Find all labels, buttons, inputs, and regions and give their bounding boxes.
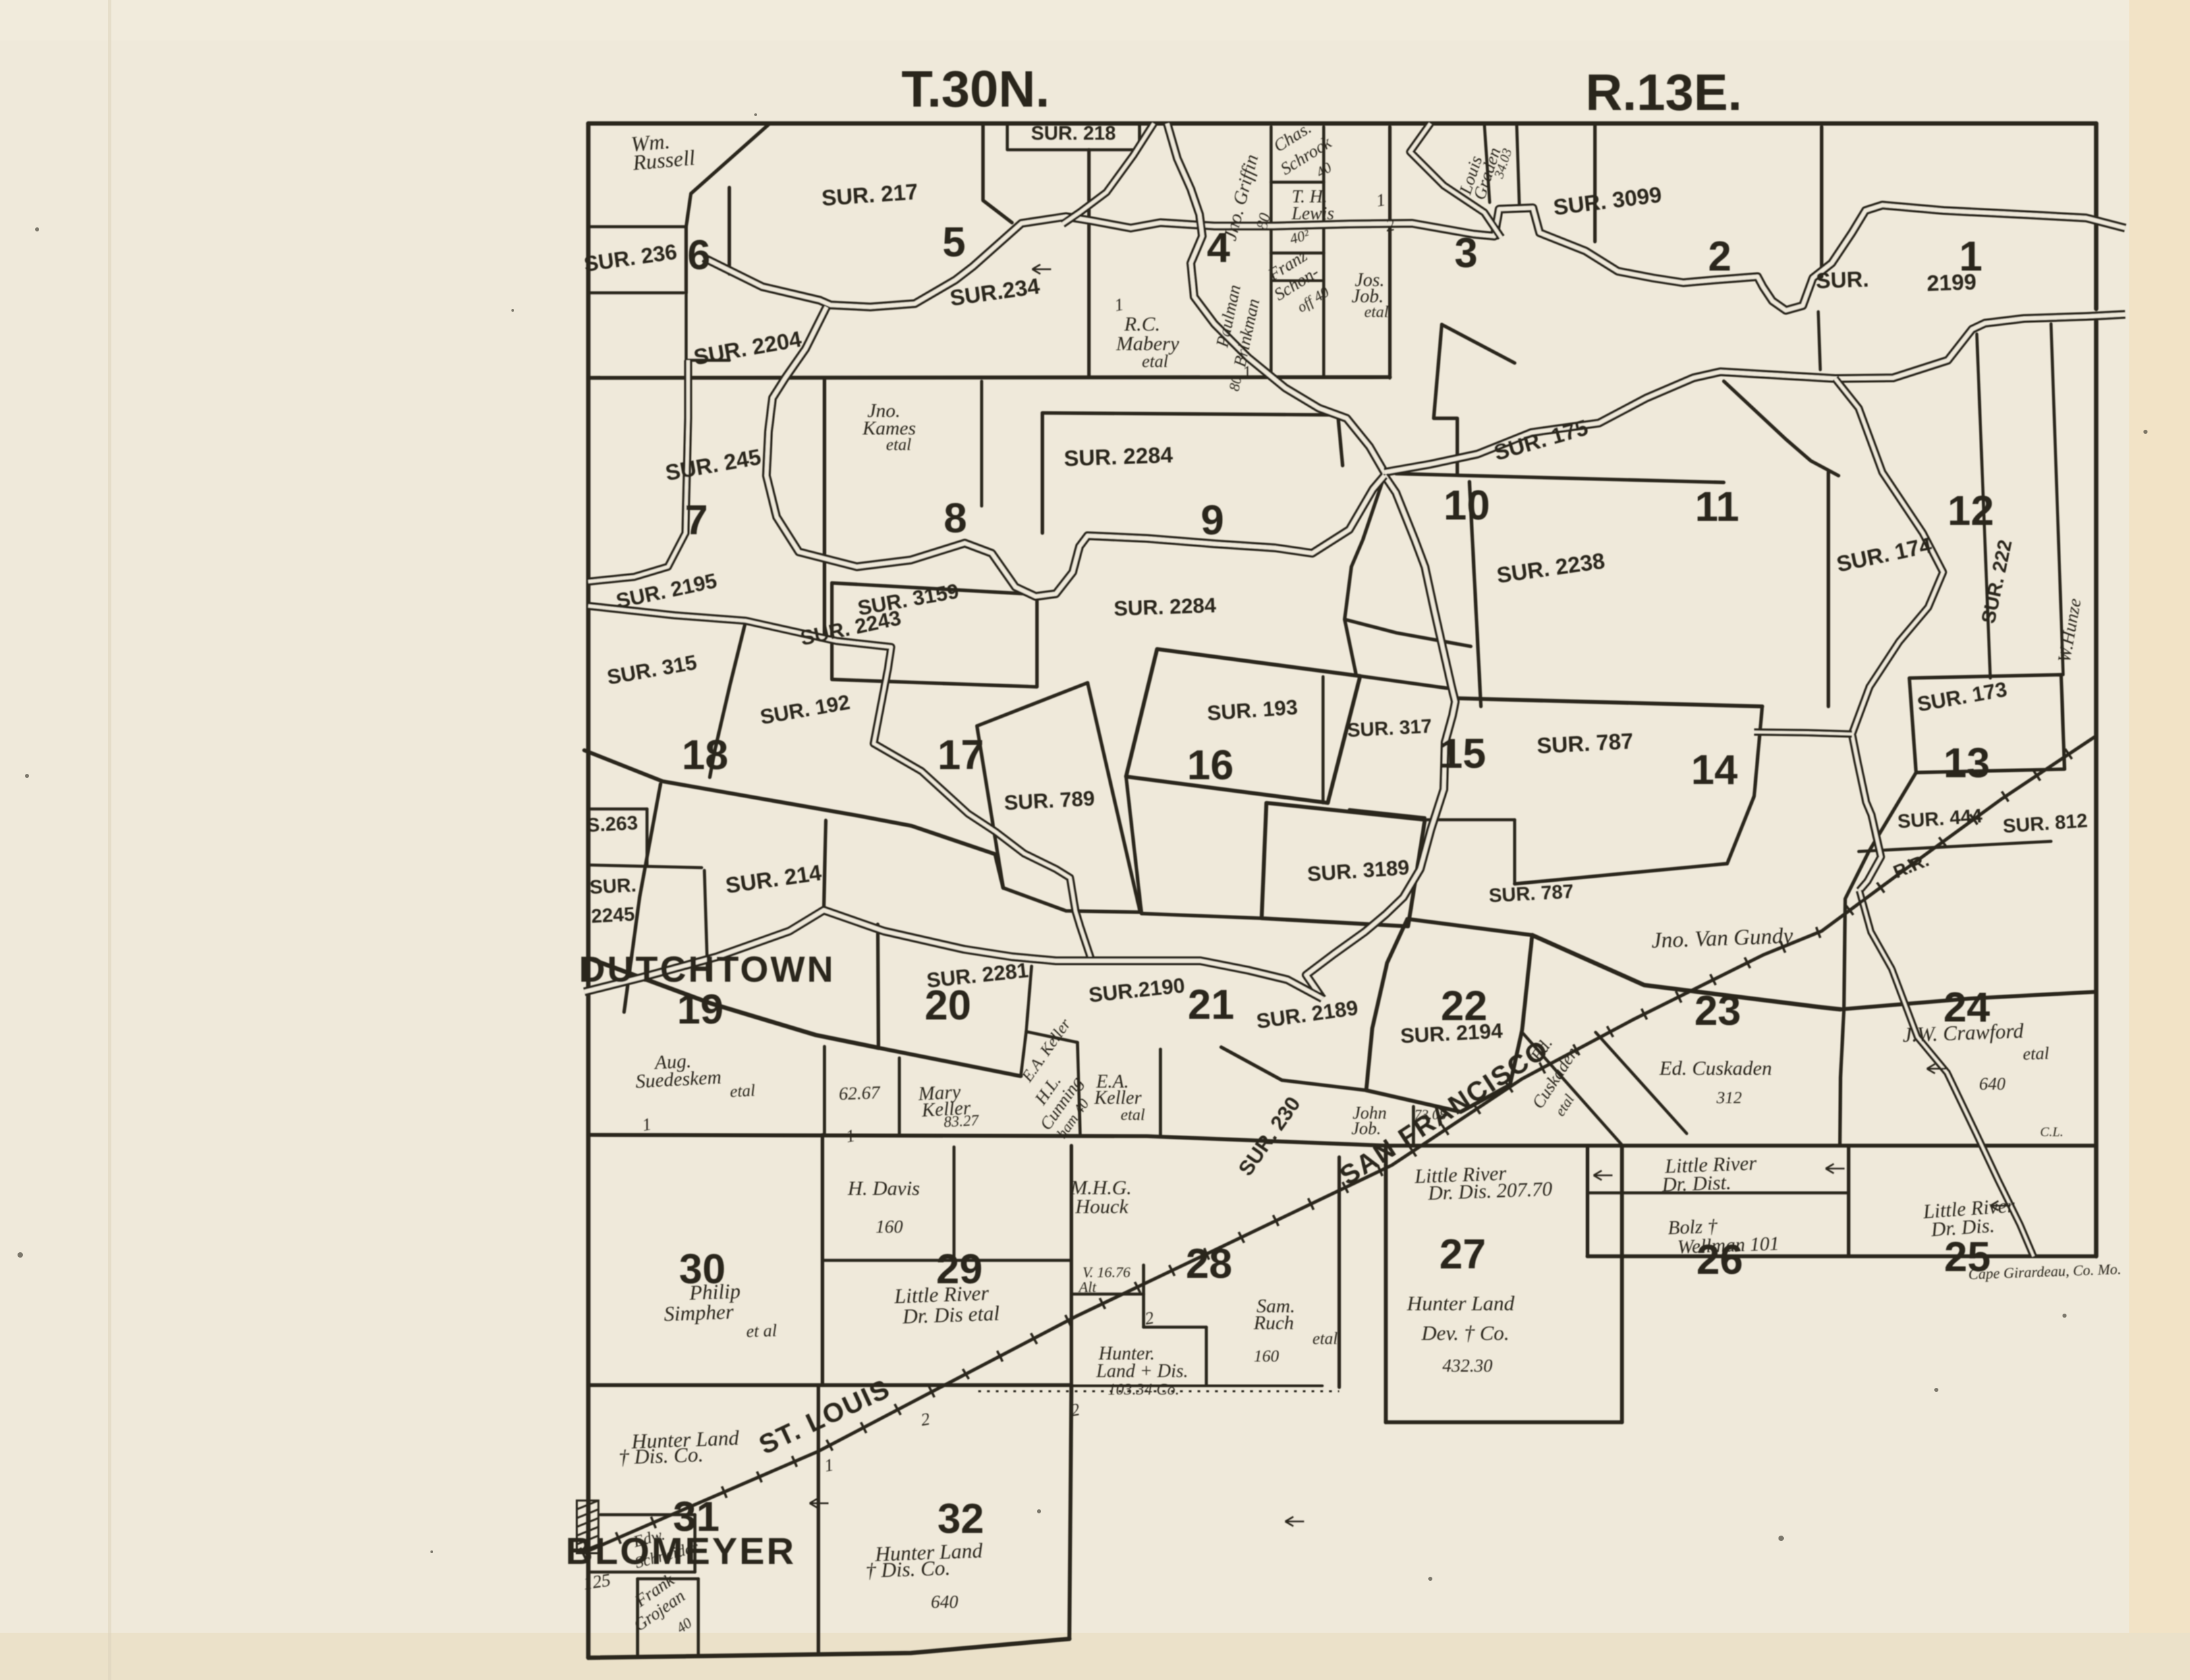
svg-text:23: 23 [1695,988,1741,1034]
svg-text:DUTCHTOWN: DUTCHTOWN [579,949,835,990]
svg-text:640: 640 [931,1592,959,1612]
svg-text:SUR.: SUR. [1816,267,1870,293]
svg-text:SUR. 218: SUR. 218 [1031,123,1116,144]
svg-text:8: 8 [944,495,967,542]
svg-text:Suedeskem: Suedeskem [635,1067,722,1093]
svg-text:† Dis. Co.: † Dis. Co. [618,1443,704,1469]
svg-text:C.L.: C.L. [2040,1125,2063,1140]
svg-text:15: 15 [1440,731,1486,777]
svg-text:SUR. 787: SUR. 787 [1488,881,1574,907]
svg-text:Dr. Dis etal: Dr. Dis etal [901,1301,1000,1328]
svg-text:83.27: 83.27 [943,1112,980,1131]
svg-text:SUR. 789: SUR. 789 [1003,787,1095,815]
svg-text:19: 19 [677,986,724,1033]
svg-text:Land + Dis.: Land + Dis. [1096,1361,1188,1382]
svg-text:etal: etal [2023,1043,2050,1063]
svg-text:9: 9 [1201,497,1224,544]
svg-text:Job.: Job. [1351,1119,1381,1138]
svg-text:Dr. Dis.: Dr. Dis. [1930,1214,1995,1241]
svg-text:† Dis. Co.: † Dis. Co. [865,1556,951,1582]
svg-text:6: 6 [687,232,710,279]
svg-text:2: 2 [1708,233,1731,280]
svg-text:312: 312 [1716,1089,1742,1107]
svg-text:103.34 Co.: 103.34 Co. [1108,1381,1179,1399]
svg-text:2245: 2245 [590,903,635,927]
svg-text:10: 10 [1444,482,1490,529]
svg-text:18: 18 [682,732,729,779]
svg-text:Dr. Dis. 207.70: Dr. Dis. 207.70 [1427,1178,1552,1204]
svg-text:14: 14 [1691,747,1738,793]
svg-text:17: 17 [938,732,984,779]
svg-text:T.30N.: T.30N. [901,61,1050,118]
svg-text:etal: etal [1364,304,1388,321]
svg-text:125: 125 [582,1569,612,1593]
svg-text:R.13E.: R.13E. [1585,64,1742,121]
svg-text:32: 32 [938,1496,984,1542]
svg-text:Wellman 101: Wellman 101 [1677,1233,1780,1258]
svg-text:etal: etal [1312,1330,1338,1348]
svg-text:Houck: Houck [1075,1196,1129,1218]
svg-text:12: 12 [1948,488,1994,534]
svg-text:SUR. 2284: SUR. 2284 [1113,593,1217,620]
svg-text:SUR. 317: SUR. 317 [1347,716,1432,742]
svg-text:Lewis: Lewis [1291,203,1334,223]
svg-text:7: 7 [685,497,708,544]
svg-text:etal: etal [886,436,911,454]
svg-text:Hunter Land: Hunter Land [1406,1291,1515,1315]
svg-text:et al: et al [746,1320,777,1341]
svg-text:Ruch: Ruch [1253,1312,1294,1334]
svg-text:S.263: S.263 [586,812,638,837]
svg-text:Dev. † Co.: Dev. † Co. [1421,1321,1509,1345]
svg-text:16: 16 [1187,742,1234,789]
svg-text:H. Davis: H. Davis [847,1177,920,1200]
svg-text:3: 3 [1455,230,1478,277]
svg-text:Keller: Keller [1094,1088,1142,1109]
svg-text:160: 160 [876,1216,903,1237]
svg-text:SUR. 2284: SUR. 2284 [1063,442,1173,471]
svg-text:2199: 2199 [1926,269,1977,296]
svg-text:640: 640 [1980,1074,2006,1094]
svg-text:62.67: 62.67 [839,1082,881,1104]
svg-text:SUR. 787: SUR. 787 [1536,728,1634,758]
svg-text:432.30: 432.30 [1442,1355,1493,1376]
svg-text:11: 11 [1695,484,1739,530]
svg-text:160: 160 [1254,1347,1279,1366]
svg-text:Simpher: Simpher [663,1299,734,1326]
svg-text:Alt: Alt [1077,1279,1097,1295]
svg-text:etal: etal [1121,1107,1145,1124]
svg-text:SUR.: SUR. [589,874,637,899]
svg-text:5: 5 [943,219,965,266]
svg-text:28: 28 [1186,1241,1233,1287]
svg-text:J.W. Crawford: J.W. Crawford [1902,1019,2024,1046]
svg-text:27: 27 [1440,1231,1486,1278]
svg-text:etal: etal [729,1082,756,1101]
svg-text:Dr. Dist.: Dr. Dist. [1661,1171,1732,1196]
svg-text:Ed. Cuskaden: Ed. Cuskaden [1659,1057,1772,1080]
svg-text:Jno. Van Gundy: Jno. Van Gundy [1651,924,1793,953]
svg-text:13: 13 [1944,740,1990,787]
svg-text:21: 21 [1188,982,1235,1028]
svg-text:etal: etal [1142,352,1169,371]
